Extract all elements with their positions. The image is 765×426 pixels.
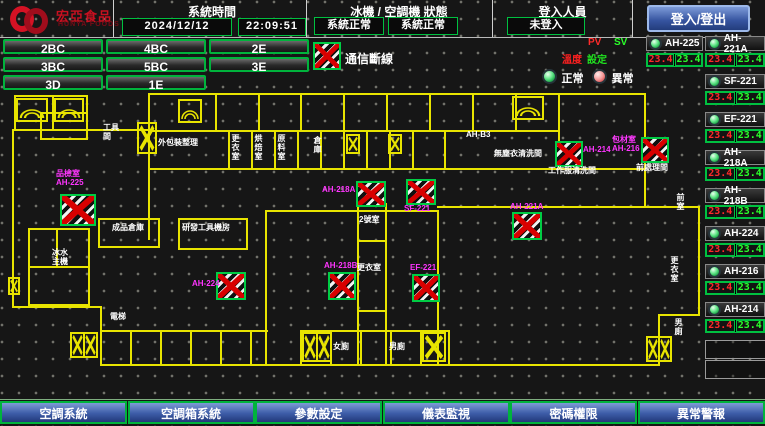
pv-value: 23.4 [706,320,735,332]
room-label: 更衣室 [670,256,679,283]
equipment-tag-label: SF-221 [404,204,430,213]
equipment-item-ah-216[interactable]: AH-216 [705,264,765,279]
stairwell-x-cell [10,279,18,293]
wall-segment [178,248,248,250]
equipment-item-ef-221[interactable]: EF-221 [705,112,765,127]
equipment-item-ah-221a[interactable]: AH-221A [705,36,765,51]
stairwell-x-cell [424,334,444,360]
room-label: 電梯 [110,312,126,321]
equipment-item-ah-218b[interactable]: AH-218B [705,188,765,203]
wall-segment [98,218,100,246]
equipment-values-ah-225: 23.423.4 [646,53,703,67]
equipment-name: AH-225 [665,38,699,49]
equipment-item-sf-221[interactable]: SF-221 [705,74,765,89]
stairwell-x-cell [304,334,316,360]
wall-segment [357,240,387,242]
stairwell-x-icon [137,122,157,154]
sv-value: 23.4 [736,320,765,332]
room-label: 烘焙室 [254,134,263,161]
equipment-values-ah-224: 23.423.4 [705,243,765,257]
wall-segment [148,168,150,240]
wall-segment [357,203,359,365]
sv-value: 23.4 [736,92,765,104]
equipment-values-ah-221a: 23.423.4 [705,53,765,67]
equipment-values-ah-214: 23.423.4 [705,319,765,333]
wall-segment [444,130,446,168]
stairwell-x-icon [388,134,402,154]
wall-segment [297,130,299,168]
comm-loss-marker-icon[interactable] [328,272,356,300]
comm-loss-marker-icon[interactable] [356,181,386,207]
stairwell-x-cell [83,334,96,356]
pv-value: 23.4 [706,206,735,218]
stairwell-x-icon [302,332,332,362]
wall-segment [250,330,252,364]
room-label: 無塵衣清洗間 [494,149,542,158]
wall-segment [150,93,646,95]
equipment-status-led [708,37,721,50]
nav-button-5[interactable]: 密碼權限 [510,401,637,424]
stairs-icon [54,98,84,122]
room-label: 男廁 [674,318,683,336]
sv-value: 23.4 [736,206,765,218]
sv-value: 23.4 [736,168,765,180]
room-label: 冰水 主機 [52,248,68,266]
wall-segment [12,306,102,308]
sv-value: 23.4 [675,54,702,66]
comm-loss-marker-icon[interactable] [216,272,246,300]
wall-segment [14,129,88,131]
sv-value: 23.4 [736,54,765,66]
equipment-tag-label: AH-218A [322,185,355,194]
nav-button-6[interactable]: 異常警報 [638,401,765,424]
comm-loss-marker-icon[interactable] [512,212,542,240]
stairwell-x-icon [646,336,672,362]
wall-segment [246,218,248,248]
room-label: 原料室 [277,134,286,161]
sv-value: 23.4 [736,130,765,142]
equipment-status-led [708,189,721,202]
wall-segment [300,93,302,130]
wall-segment [160,330,162,364]
wall-segment [360,330,362,364]
room-label: 外包裝整理 [158,138,198,147]
wall-segment [220,330,222,364]
equipment-tag-label: AH-214 [583,145,611,154]
equipment-status-led [708,151,721,164]
stairs-icon [16,98,48,122]
wall-segment [386,93,388,130]
wall-segment [357,310,387,312]
wall-segment [100,306,102,366]
wall-segment [258,93,260,130]
room-label: 更衣室 [231,134,240,161]
room-label: 更衣室 [357,263,381,272]
wall-segment [228,130,230,168]
equipment-name: AH-224 [724,228,758,239]
comm-loss-marker-icon[interactable] [641,137,669,163]
wall-segment [178,218,180,248]
equipment-values-ah-216: 23.423.4 [705,281,765,295]
sv-value: 23.4 [736,282,765,294]
stairwell-x-icon [8,277,20,295]
sv-value: 23.4 [736,244,765,256]
pv-value: 23.4 [706,130,735,142]
wall-segment [251,130,253,168]
wall-segment [28,266,90,268]
stairwell-x-cell [390,136,400,152]
wall-segment [178,218,248,220]
comm-loss-marker-icon[interactable] [406,179,436,205]
equipment-tag-label: AH-218B [324,261,357,270]
wall-segment [448,330,450,364]
equipment-tag-label: AH-224 [192,279,220,288]
wall-segment [343,130,345,168]
room-label: AH-B3 [466,130,490,139]
room-label: 前室 [676,193,685,211]
wall-segment [28,228,90,230]
pv-value: 23.4 [706,92,735,104]
room-label: 工作服清洗間 [548,166,596,175]
pv-value: 23.4 [706,244,735,256]
wall-segment [644,168,646,208]
wall-segment [40,138,88,140]
empty-equipment-slot [705,340,765,359]
equipment-name: AH-218A [724,147,764,169]
pv-value: 23.4 [706,168,735,180]
equipment-status-led [708,113,721,126]
equipment-item-ah-225[interactable]: AH-225 [646,36,703,51]
equipment-status-led [708,227,721,240]
wall-segment [385,203,387,365]
wall-segment [412,130,414,168]
wall-segment [28,304,90,306]
room-label: 成品倉庫 [112,223,144,232]
wall-segment [98,246,160,248]
stairwell-x-cell [316,334,330,360]
wall-segment [215,93,217,130]
room-label: 女廁 [333,342,349,351]
comm-loss-marker-icon[interactable] [555,141,583,167]
equipment-item-ah-214[interactable]: AH-214 [705,302,765,317]
room-label: 倉庫 [313,136,322,154]
pv-value: 23.4 [706,54,735,66]
stairwell-x-cell [139,124,155,152]
equipment-name: SF-221 [724,76,757,87]
wall-segment [98,218,160,220]
wall-segment [472,93,474,130]
wall-segment [366,130,368,168]
wall-segment [150,130,558,132]
room-label: 前處理間 [636,163,668,172]
equipment-tag-label: AH-221A [510,202,543,211]
nav-button-1[interactable]: 空調系統 [0,401,127,424]
equipment-item-ah-218a[interactable]: AH-218A [705,150,765,165]
pv-value: 23.4 [647,54,674,66]
nav-button-4[interactable]: 儀表監視 [383,401,510,424]
stairwell-x-icon [346,134,360,154]
comm-loss-marker-icon[interactable] [412,274,440,302]
equipment-values-ah-218a: 23.423.4 [705,167,765,181]
wall-segment [130,330,132,364]
wall-segment [100,364,660,366]
wall-segment [698,206,700,316]
wall-segment [86,112,88,138]
stairwell-x-cell [658,338,670,360]
equipment-name: AH-216 [724,266,758,277]
room-label: 研發工具機房 [182,223,230,232]
equipment-tag-label: 包材室 AH-216 [612,135,640,153]
room-label: 工具 間 [103,123,119,141]
stairwell-x-cell [72,334,83,356]
equipment-status-led [708,265,721,278]
equipment-values-sf-221: 23.423.4 [705,91,765,105]
wall-segment [100,330,268,332]
equipment-name: EF-221 [724,114,757,125]
wall-segment [158,218,160,246]
comm-loss-marker-icon[interactable] [60,194,96,226]
empty-equipment-slot [705,360,765,379]
wall-segment [14,95,88,97]
pv-value: 23.4 [706,282,735,294]
stairs-icon [178,99,202,123]
stairs-icon [512,96,544,120]
equipment-status-led [649,37,662,50]
wall-segment [429,93,431,130]
nav-button-2[interactable]: 空調箱系統 [128,401,255,424]
equipment-values-ef-221: 23.423.4 [705,129,765,143]
stairwell-x-icon [70,332,98,358]
equipment-name: AH-221A [724,33,764,55]
wall-segment [437,206,700,208]
equipment-name: AH-218B [724,185,764,207]
scada-screen: 宏亞食品 HUNYA FOODS 系統時間 2024/12/12 22:09:5… [0,0,765,426]
equipment-item-ah-224[interactable]: AH-224 [705,226,765,241]
wall-segment [343,93,345,130]
stairwell-x-icon [422,332,446,362]
room-label: 男廁 [389,342,405,351]
equipment-name: AH-214 [724,304,758,315]
bottom-bar-topline [0,399,765,400]
stairwell-x-cell [348,136,358,152]
wall-segment [265,210,267,365]
room-label: 2號室 [359,215,379,224]
wall-segment [658,314,700,316]
equipment-tag-label: EF-221 [410,263,436,272]
equipment-status-led [708,303,721,316]
wall-segment [190,330,192,364]
equipment-status-led [708,75,721,88]
equipment-values-ah-218b: 23.423.4 [705,205,765,219]
equipment-tag-label: 品檢室 AH-225 [56,169,84,187]
wall-segment [274,130,276,168]
nav-button-3[interactable]: 參數設定 [255,401,382,424]
stairwell-x-cell [648,338,658,360]
